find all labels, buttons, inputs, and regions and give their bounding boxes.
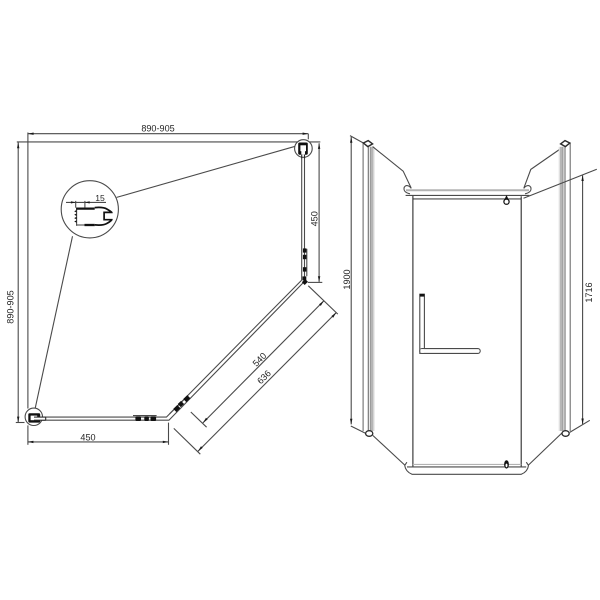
svg-text:1716: 1716 bbox=[584, 282, 594, 302]
svg-text:1900: 1900 bbox=[342, 269, 352, 289]
svg-text:540: 540 bbox=[251, 351, 269, 369]
svg-text:450: 450 bbox=[309, 211, 319, 226]
svg-text:15: 15 bbox=[95, 193, 105, 203]
svg-text:890-905: 890-905 bbox=[6, 290, 16, 323]
svg-text:890-905: 890-905 bbox=[141, 123, 174, 133]
svg-text:450: 450 bbox=[80, 433, 95, 443]
svg-text:636: 636 bbox=[255, 368, 273, 386]
